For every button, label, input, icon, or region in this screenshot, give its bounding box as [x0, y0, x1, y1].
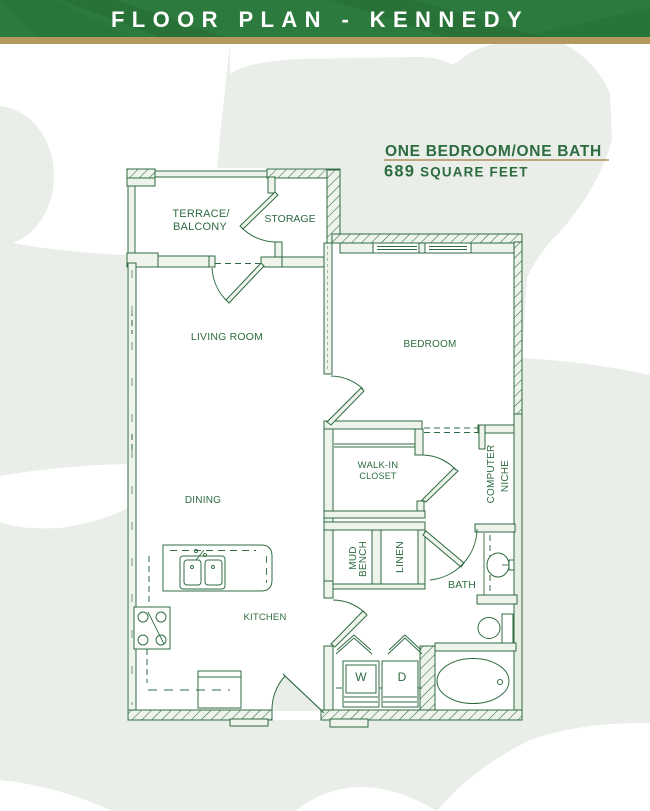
svg-text:TERRACE/: TERRACE/	[172, 208, 230, 220]
svg-text:FLOOR PLAN - KENNEDY: FLOOR PLAN - KENNEDY	[111, 7, 529, 32]
svg-text:LINEN: LINEN	[394, 541, 406, 573]
svg-text:KITCHEN: KITCHEN	[243, 612, 286, 623]
svg-text:NICHE: NICHE	[500, 460, 511, 492]
svg-text:STORAGE: STORAGE	[264, 213, 315, 225]
svg-text:D: D	[398, 670, 407, 684]
svg-text:CLOSET: CLOSET	[359, 471, 397, 481]
svg-text:BEDROOM: BEDROOM	[403, 339, 456, 350]
svg-text:LIVING ROOM: LIVING ROOM	[191, 331, 263, 343]
svg-text:COMPUTER: COMPUTER	[486, 445, 497, 504]
svg-text:WALK-IN: WALK-IN	[358, 460, 399, 471]
svg-text:W: W	[355, 670, 367, 684]
svg-text:BENCH: BENCH	[358, 541, 369, 577]
svg-text:689SQUARE FEET: 689SQUARE FEET	[384, 163, 529, 181]
svg-text:BATH: BATH	[448, 579, 476, 591]
svg-text:BALCONY: BALCONY	[173, 221, 227, 233]
svg-text:DINING: DINING	[185, 495, 221, 506]
svg-text:ONE BEDROOM/ONE BATH: ONE BEDROOM/ONE BATH	[385, 143, 602, 160]
